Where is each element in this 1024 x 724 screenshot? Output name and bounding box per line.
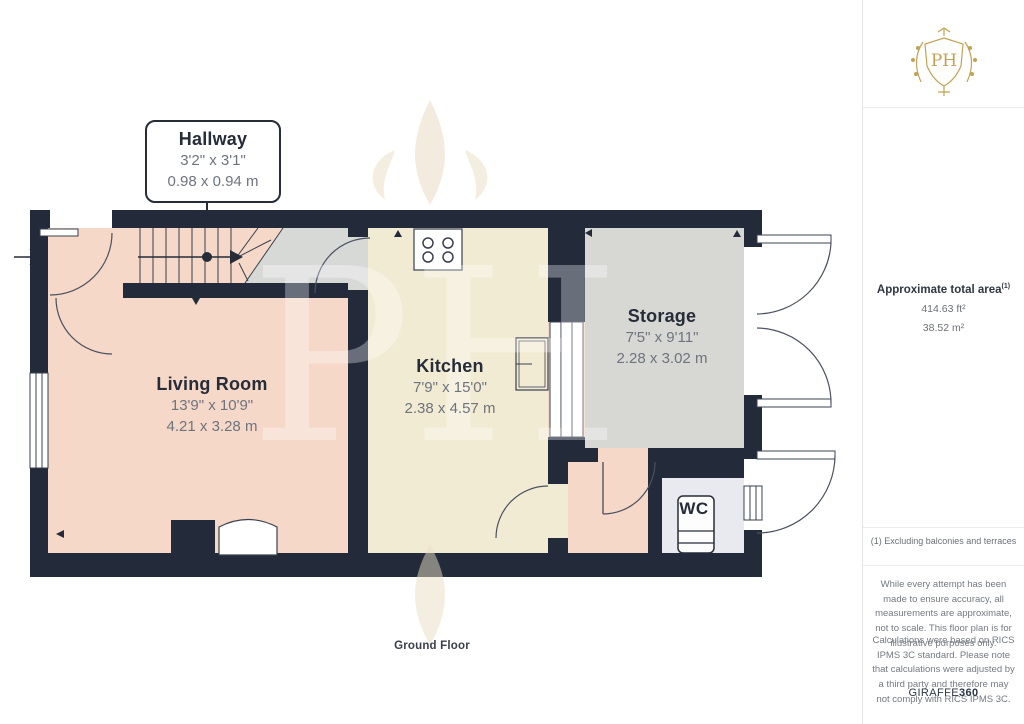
wall-wc-left xyxy=(648,462,662,553)
wc-window xyxy=(744,486,762,520)
total-area-block: Approximate total area(1) 414.63 ft² 38.… xyxy=(863,283,1024,334)
floor-title: Ground Floor xyxy=(332,640,532,652)
room-dim-imperial-hallway: 3'2" x 3'1" xyxy=(151,150,275,171)
total-area-imperial: 414.63 ft² xyxy=(863,303,1024,315)
room-name-living: Living Room xyxy=(92,374,332,395)
total-area-title: Approximate total area(1) xyxy=(863,283,1024,296)
wc-label: WC xyxy=(664,499,724,519)
living-room-window xyxy=(30,373,48,468)
exterior-french-door-bottom xyxy=(757,328,831,407)
wall-wc-top xyxy=(648,462,744,478)
living-room-label: Living Room 13'9" x 10'9" 4.21 x 3.28 m xyxy=(92,374,332,437)
total-area-superscript: (1) xyxy=(1002,283,1011,290)
room-dim-metric-living: 4.21 x 3.28 m xyxy=(92,416,332,437)
exterior-side-door xyxy=(757,451,835,533)
wall-bottom xyxy=(30,553,762,577)
total-area-metric: 38.52 m² xyxy=(863,322,1024,334)
room-name-hallway: Hallway xyxy=(151,129,275,150)
room-dim-imperial-kitchen: 7'9" x 15'0" xyxy=(360,377,540,398)
bay-window xyxy=(219,520,277,556)
room-name-kitchen: Kitchen xyxy=(360,356,540,377)
agency-crest-logo: PH xyxy=(863,8,1024,103)
kitchen-label: Kitchen 7'9" x 15'0" 2.38 x 4.57 m xyxy=(360,356,540,419)
room-dim-metric-kitchen: 2.38 x 4.57 m xyxy=(360,398,540,419)
logo-monogram: PH xyxy=(931,51,957,71)
storage-label: Storage 7'5" x 9'11" 2.28 x 3.02 m xyxy=(572,306,752,369)
giraffe360-brand: GIRAFFE360 xyxy=(863,687,1024,699)
room-dim-metric-storage: 2.28 x 3.02 m xyxy=(572,348,752,369)
exterior-french-door-top xyxy=(757,235,831,314)
stair-direction-dot xyxy=(202,252,212,262)
sidebar-divider xyxy=(863,565,1024,566)
room-name-storage: Storage xyxy=(572,306,752,327)
room-dim-imperial-living: 13'9" x 10'9" xyxy=(92,395,332,416)
brand-suffix: 360 xyxy=(959,687,979,699)
sidebar-divider xyxy=(863,527,1024,528)
area-footnote: (1) Excluding balconies and terraces xyxy=(863,536,1024,546)
hallway-callout: Hallway 3'2" x 3'1" 0.98 x 0.94 m xyxy=(145,120,281,203)
sidebar-divider xyxy=(863,107,1024,108)
wall-chimney-breast xyxy=(171,520,215,553)
brand-name: GIRAFFE xyxy=(908,687,958,699)
info-sidebar: PH Approximate total area(1) 414.63 ft² … xyxy=(862,0,1024,724)
floor-plan-page: PH Hallway 3'2" x 3'1" 0.98 x 0.94 m Liv… xyxy=(0,0,1024,724)
room-dim-imperial-storage: 7'5" x 9'11" xyxy=(572,327,752,348)
room-dim-metric-hallway: 0.98 x 0.94 m xyxy=(151,171,275,192)
total-area-title-text: Approximate total area xyxy=(877,284,1002,296)
